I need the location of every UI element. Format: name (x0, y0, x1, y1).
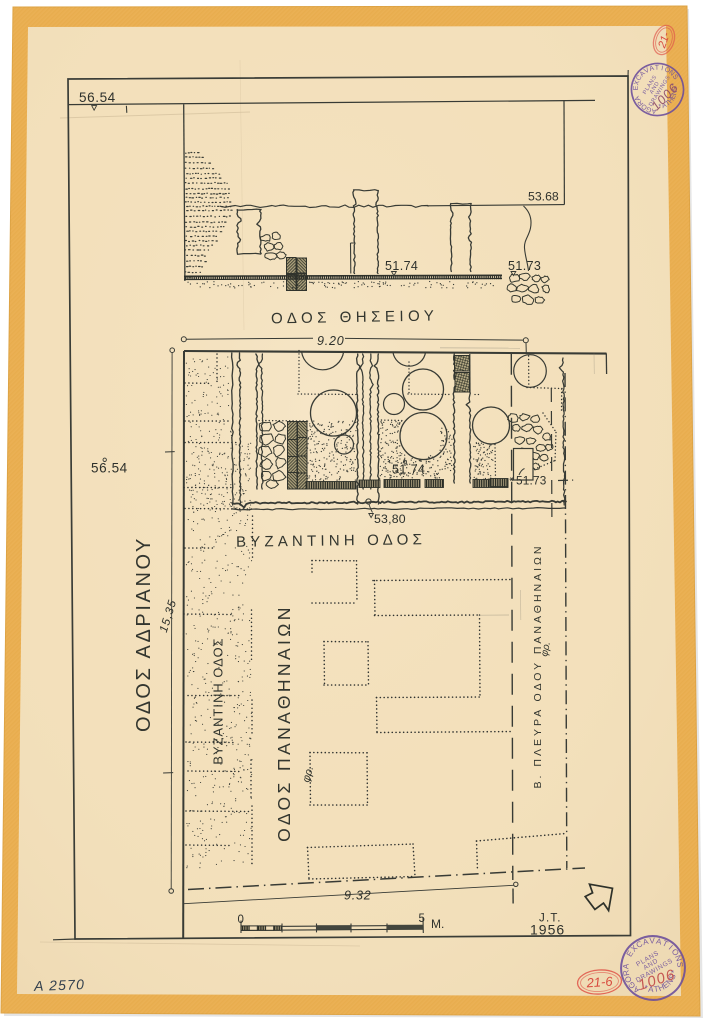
svg-text:5: 5 (419, 913, 425, 925)
svg-text:ΟΔΟΣ ΑΔΡΙΑΝΟΥ: ΟΔΟΣ ΑΔΡΙΑΝΟΥ (133, 536, 155, 732)
svg-text:53.68: 53.68 (528, 190, 559, 204)
svg-text:Β. ΠΛΕΥΡΑ ΟΔΟΥ ΠΑΝΑΘΗΝΑΙΩΝ: Β. ΠΛΕΥΡΑ ΟΔΟΥ ΠΑΝΑΘΗΝΑΙΩΝ (532, 544, 544, 789)
svg-text:56.54: 56.54 (79, 90, 116, 105)
svg-text:56.54: 56.54 (91, 461, 128, 476)
svg-text:51.73: 51.73 (516, 474, 547, 488)
svg-text:51.74: 51.74 (392, 463, 425, 477)
svg-text:M.: M. (431, 917, 444, 931)
svg-text:51.74: 51.74 (385, 259, 418, 273)
svg-text:1956: 1956 (530, 922, 565, 938)
svg-text:51.73: 51.73 (508, 259, 541, 273)
svg-text:0: 0 (238, 914, 244, 926)
svg-text:ΟΔΟΣ ΘΗΣΕΙΟΥ: ΟΔΟΣ ΘΗΣΕΙΟΥ (271, 307, 439, 327)
svg-text:53,80: 53,80 (374, 512, 406, 526)
svg-text:ΟΔΟΣ ΠΑΝΑΘΗΝΑΙΩΝ: ΟΔΟΣ ΠΑΝΑΘΗΝΑΙΩΝ (274, 604, 294, 842)
svg-text:ΒΥΖΑΝΤΙΝΗ ΟΔΟΣ: ΒΥΖΑΝΤΙΝΗ ΟΔΟΣ (236, 531, 426, 551)
svg-text:ΒΥΖΑΝΤΙΝΗ ΟΔΟΣ: ΒΥΖΑΝΤΙΝΗ ΟΔΟΣ (211, 637, 226, 764)
svg-text:A 2570: A 2570 (33, 976, 86, 994)
svg-text:9.32: 9.32 (344, 889, 372, 903)
svg-text:9.20: 9.20 (317, 334, 345, 348)
svg-text:21-6: 21-6 (585, 974, 614, 991)
